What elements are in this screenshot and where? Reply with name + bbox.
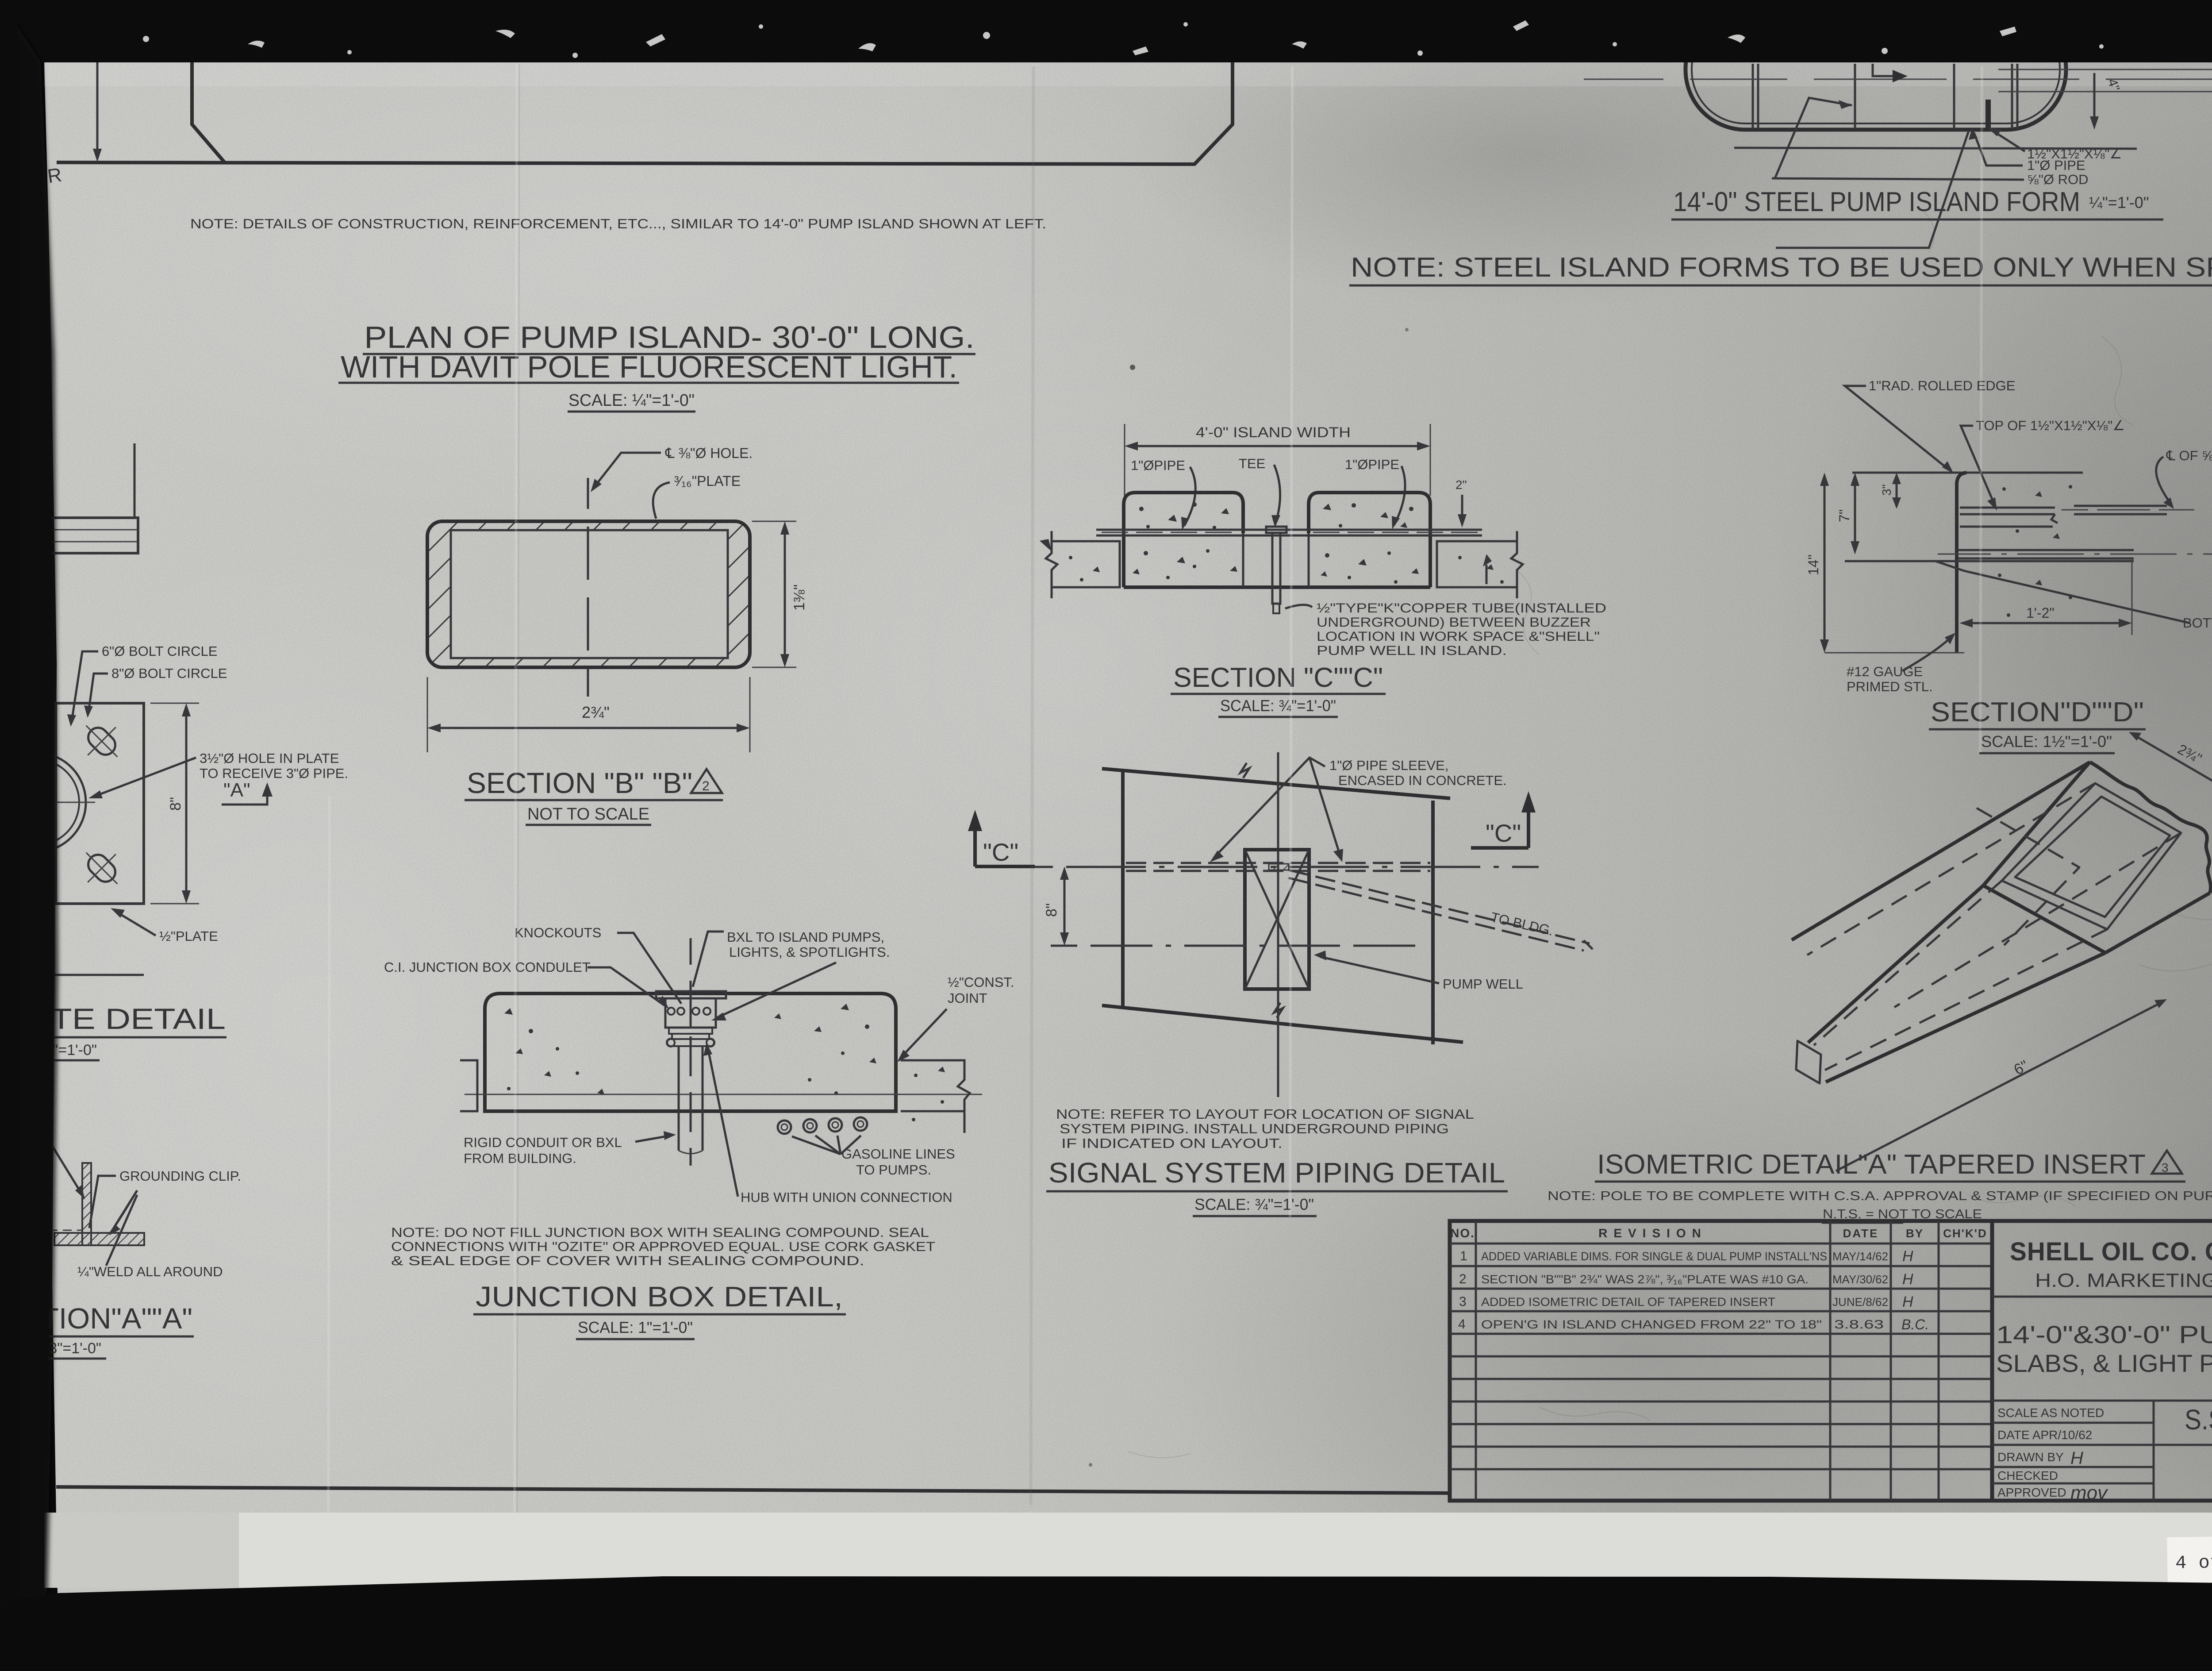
svg-text:4 of/de 4: 4 of/de 4 xyxy=(2175,1551,2212,1574)
